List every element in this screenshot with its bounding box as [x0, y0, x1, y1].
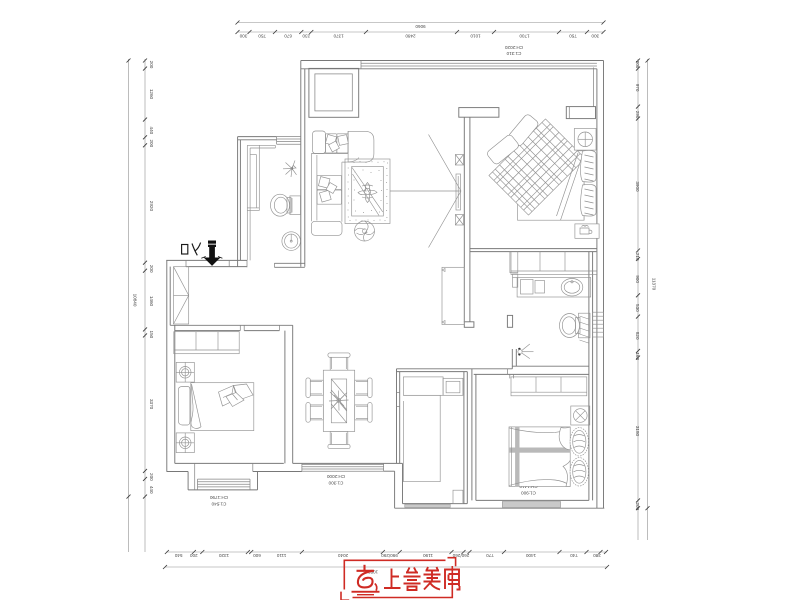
svg-text:C1:300: C1:300 — [328, 480, 343, 485]
svg-text:1370: 1370 — [333, 33, 344, 38]
svg-text:990/290: 990/290 — [381, 553, 398, 558]
svg-text:300: 300 — [239, 33, 247, 38]
svg-text:210: 210 — [635, 253, 640, 261]
svg-text:2480: 2480 — [405, 33, 416, 38]
svg-text:670: 670 — [284, 33, 292, 38]
svg-text:200: 200 — [149, 265, 154, 273]
svg-text:290: 290 — [635, 111, 640, 119]
svg-text:2920: 2920 — [149, 201, 154, 212]
svg-text:200: 200 — [149, 473, 154, 481]
svg-text:200: 200 — [149, 61, 154, 69]
svg-text:3370: 3370 — [149, 399, 154, 410]
svg-text:CH:2000: CH:2000 — [326, 474, 345, 479]
svg-text:10840: 10840 — [133, 294, 138, 307]
svg-text:440: 440 — [149, 127, 154, 135]
svg-text:820: 820 — [635, 332, 640, 340]
svg-text:9060: 9060 — [415, 24, 426, 29]
svg-text:440: 440 — [149, 486, 154, 494]
svg-text:C1:540: C1:540 — [211, 501, 226, 506]
svg-text:900: 900 — [635, 275, 640, 283]
svg-text:200: 200 — [190, 553, 198, 558]
svg-text:230: 230 — [302, 33, 310, 38]
svg-text:1110: 1110 — [276, 553, 286, 558]
svg-text:750: 750 — [569, 33, 577, 38]
svg-text:C1:900: C1:900 — [521, 490, 536, 495]
svg-text:1010: 1010 — [470, 33, 481, 38]
svg-text:160: 160 — [635, 352, 640, 360]
svg-text:1400: 1400 — [525, 553, 536, 558]
svg-text:1260: 1260 — [149, 89, 154, 100]
svg-text:C1:310: C1:310 — [506, 51, 521, 56]
svg-text:3900: 3900 — [635, 181, 640, 192]
svg-text:1190: 1190 — [423, 553, 433, 558]
svg-text:2040: 2040 — [337, 553, 348, 558]
svg-text:600: 600 — [253, 553, 261, 558]
svg-text:CH:1790: CH:1790 — [209, 495, 228, 500]
svg-text:150: 150 — [149, 331, 154, 339]
svg-text:970: 970 — [635, 84, 640, 92]
svg-text:1700: 1700 — [519, 33, 530, 38]
svg-text:CH:2020: CH:2020 — [504, 45, 523, 50]
svg-text:380: 380 — [593, 553, 601, 558]
svg-text:200: 200 — [149, 139, 154, 147]
svg-text:530: 530 — [635, 304, 640, 312]
svg-text:11370: 11370 — [652, 278, 657, 291]
svg-text:300: 300 — [591, 33, 599, 38]
svg-text:200: 200 — [635, 502, 640, 510]
svg-text:1460: 1460 — [149, 296, 154, 307]
svg-text:770: 770 — [486, 553, 494, 558]
svg-text:1320: 1320 — [218, 553, 229, 558]
svg-text:750: 750 — [258, 33, 266, 38]
svg-text:200: 200 — [635, 61, 640, 69]
svg-text:540: 540 — [174, 553, 182, 558]
svg-text:3180: 3180 — [635, 426, 640, 437]
svg-text:740: 740 — [570, 553, 578, 558]
